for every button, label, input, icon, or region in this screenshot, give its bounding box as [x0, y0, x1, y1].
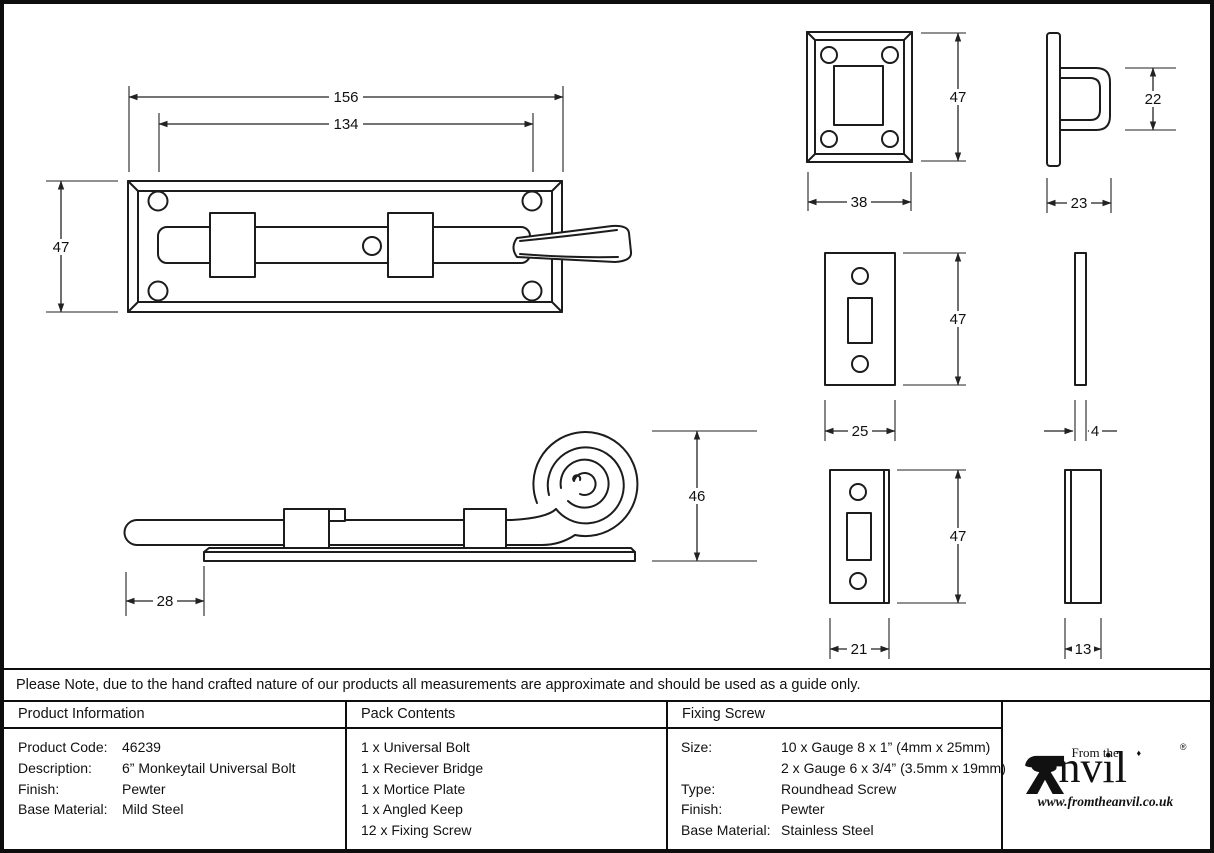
- spec-row: Base Material:Stainless Steel: [681, 820, 997, 841]
- brand-url: www.fromtheanvil.co.uk: [1021, 794, 1191, 810]
- field-value: 10 x Gauge 8 x 1” (4mm x 25mm): [781, 737, 990, 758]
- pack-contents-body: 1 x Universal Bolt1 x Reciever Bridge1 x…: [347, 729, 666, 841]
- product-information-body: Product Code:46239Description:6” Monkeyt…: [4, 729, 345, 820]
- info-table: Product Information Product Code:46239De…: [4, 702, 1210, 849]
- screw-hole: [821, 47, 837, 63]
- spec-row: Description:6” Monkeytail Universal Bolt: [18, 758, 341, 779]
- spec-row: 1 x Angled Keep: [361, 799, 662, 820]
- bolt-slot: [847, 513, 871, 560]
- screw-hole: [149, 282, 168, 301]
- dim-label-mortice-thickness: 4: [1091, 423, 1099, 440]
- tail-baseplate: [204, 548, 635, 561]
- screw-hole: [852, 356, 868, 372]
- field-value: Mild Steel: [122, 799, 183, 820]
- dim-label-keep-height: 47: [950, 528, 967, 545]
- screw-hole: [821, 131, 837, 147]
- field-label: Product Code:: [18, 737, 122, 758]
- note-text: Please Note, due to the hand crafted nat…: [16, 677, 860, 693]
- screw-hole: [523, 282, 542, 301]
- rod-hole: [363, 237, 381, 255]
- field-label: Base Material:: [681, 820, 781, 841]
- universal-bolt-plan-drawing: 156 134 47: [46, 86, 631, 312]
- screw-hole: [850, 573, 866, 589]
- bolt-guide: [210, 213, 255, 277]
- dim-label-bolt-overall: 156: [333, 89, 358, 106]
- spec-row: Finish:Pewter: [681, 799, 997, 820]
- dim-label-keep-depth: 13: [1075, 641, 1092, 658]
- spec-row: 2 x Gauge 6 x 3/4” (3.5mm x 19mm): [681, 758, 997, 779]
- product-information-header: Product Information: [4, 702, 345, 729]
- spec-row: 12 x Fixing Screw: [361, 820, 662, 841]
- dim-label-bridge-loop-height: 22: [1145, 91, 1162, 108]
- registered-mark: ®: [1180, 742, 1187, 752]
- field-label: Finish:: [18, 779, 122, 800]
- dim-label-tail-height: 46: [689, 488, 706, 505]
- monkeytail-side-drawing: 46 28: [125, 431, 758, 616]
- dim-label-tail-offset: 28: [157, 593, 174, 610]
- fixing-screw-body: Size:10 x Gauge 8 x 1” (4mm x 25mm)2 x G…: [668, 729, 1001, 841]
- field-label: Finish:: [681, 799, 781, 820]
- field-value: 6” Monkeytail Universal Bolt: [122, 758, 296, 779]
- dim-label-bolt-inner: 134: [333, 116, 358, 133]
- field-value: 2 x Gauge 6 x 3/4” (3.5mm x 19mm): [781, 758, 1006, 779]
- screw-hole: [850, 484, 866, 500]
- note-bar: Please Note, due to the hand crafted nat…: [4, 668, 1210, 702]
- tail-guide: [284, 509, 329, 548]
- spec-row: 1 x Mortice Plate: [361, 779, 662, 800]
- dim-label-bolt-height: 47: [53, 239, 70, 256]
- fixing-screw-column: Fixing Screw Size:10 x Gauge 8 x 1” (4mm…: [668, 702, 1003, 849]
- dim-label-mortice-width: 25: [852, 423, 869, 440]
- bolt-opening: [834, 66, 883, 125]
- field-value: Roundhead Screw: [781, 779, 896, 800]
- spec-row: Product Code:46239: [18, 737, 341, 758]
- field-label: [681, 758, 781, 779]
- tail-guide-notch: [329, 509, 345, 521]
- fixing-screw-header: Fixing Screw: [668, 702, 1001, 729]
- spec-row: Base Material:Mild Steel: [18, 799, 341, 820]
- tail-guide: [464, 509, 506, 548]
- field-value: Stainless Steel: [781, 820, 874, 841]
- angled-keep-front-drawing: 47 21: [830, 470, 970, 659]
- dim-label-keep-width: 21: [851, 641, 868, 658]
- receiver-bridge-front-drawing: 47 38: [807, 32, 970, 211]
- pack-contents-column: Pack Contents 1 x Universal Bolt1 x Reci…: [347, 702, 668, 849]
- screw-hole: [149, 192, 168, 211]
- receiver-bridge-side-drawing: 22 23: [1047, 33, 1176, 213]
- dim-label-bridge-depth: 23: [1071, 195, 1088, 212]
- bolt-slot: [848, 298, 872, 343]
- field-value: Pewter: [781, 799, 825, 820]
- screw-hole: [523, 192, 542, 211]
- mortice-plate-front-drawing: 47 25: [825, 253, 970, 441]
- field-value: 46239: [122, 737, 161, 758]
- screw-hole: [882, 131, 898, 147]
- field-label: Type:: [681, 779, 781, 800]
- screw-hole: [882, 47, 898, 63]
- field-label: Base Material:: [18, 799, 122, 820]
- technical-drawings: 156 134 47: [4, 4, 1210, 668]
- pack-contents-header: Pack Contents: [347, 702, 666, 729]
- anvil-logo: From the ♦ ® nvil www.fromtheanvil.co.uk: [1025, 744, 1187, 808]
- product-information-column: Product Information Product Code:46239De…: [4, 702, 347, 849]
- drawings-svg: 156 134 47: [4, 4, 1210, 668]
- brand-logo-cell: From the ♦ ® nvil www.fromtheanvil.co.uk: [1003, 702, 1208, 849]
- tail-rod: [125, 509, 576, 545]
- screw-hole: [852, 268, 868, 284]
- spec-sheet: 156 134 47: [0, 0, 1214, 853]
- bolt-guide: [388, 213, 433, 277]
- diamond-icon: ♦: [1137, 748, 1142, 758]
- field-value: Pewter: [122, 779, 166, 800]
- dim-label-bridge-height: 47: [950, 89, 967, 106]
- spec-row: 1 x Reciever Bridge: [361, 758, 662, 779]
- brand-name: nvil: [1059, 744, 1127, 792]
- mortice-plate-side-drawing: 4: [1044, 253, 1117, 441]
- field-label: Size:: [681, 737, 781, 758]
- dim-label-bridge-width: 38: [851, 194, 868, 211]
- spec-row: 1 x Universal Bolt: [361, 737, 662, 758]
- field-label: Description:: [18, 758, 122, 779]
- spec-row: Size:10 x Gauge 8 x 1” (4mm x 25mm): [681, 737, 997, 758]
- spec-row: Type:Roundhead Screw: [681, 779, 997, 800]
- spec-row: Finish:Pewter: [18, 779, 341, 800]
- dim-label-mortice-height: 47: [950, 311, 967, 328]
- angled-keep-side-drawing: 13: [1065, 470, 1101, 659]
